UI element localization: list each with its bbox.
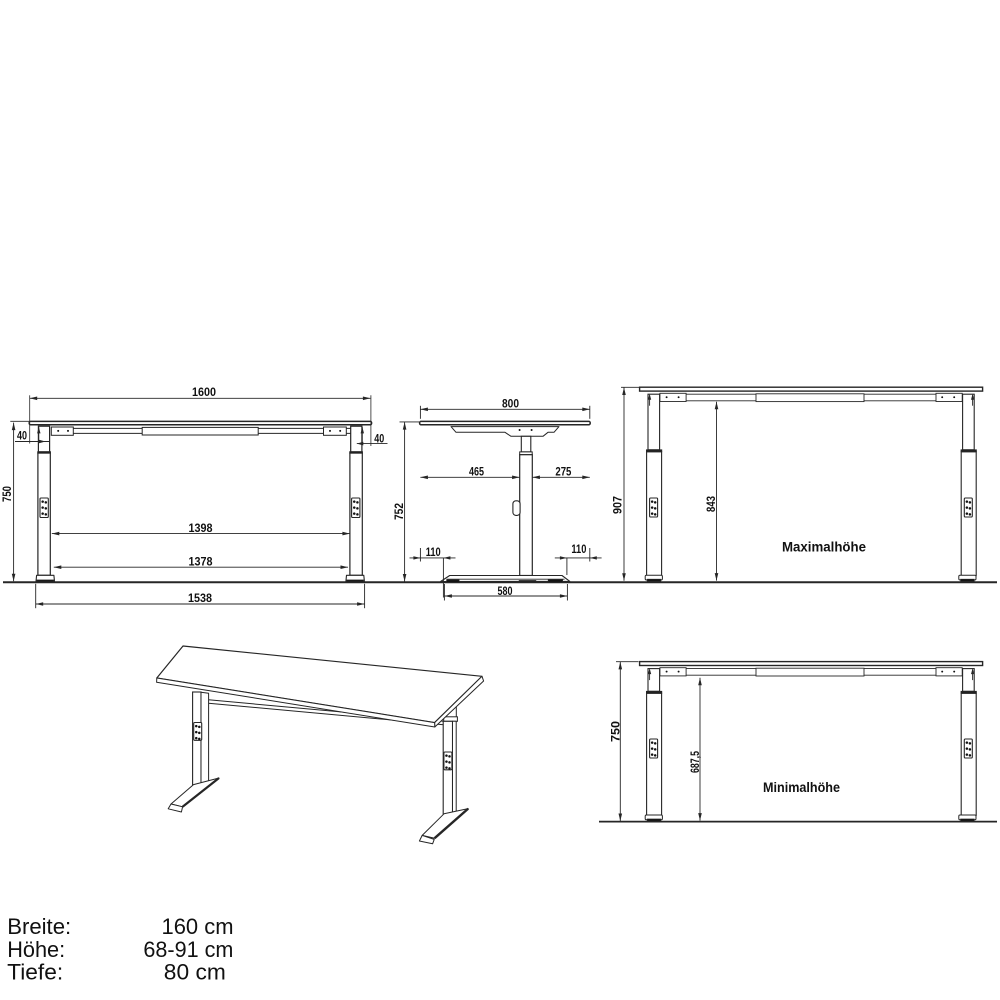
svg-text:750: 750 bbox=[608, 721, 622, 742]
svg-text:275: 275 bbox=[555, 465, 571, 479]
svg-text:800: 800 bbox=[502, 397, 519, 411]
svg-text:1538: 1538 bbox=[188, 591, 212, 605]
svg-text:68-91 cm: 68-91 cm bbox=[143, 937, 233, 962]
svg-text:843: 843 bbox=[704, 496, 718, 512]
svg-text:160 cm: 160 cm bbox=[162, 914, 234, 939]
svg-text:687,5: 687,5 bbox=[688, 751, 702, 773]
svg-text:40: 40 bbox=[17, 429, 27, 443]
svg-text:465: 465 bbox=[469, 465, 484, 479]
svg-text:Breite:: Breite: bbox=[7, 914, 71, 939]
svg-text:Tiefe:: Tiefe: bbox=[7, 960, 63, 985]
svg-text:907: 907 bbox=[611, 496, 625, 514]
svg-text:1398: 1398 bbox=[189, 521, 213, 535]
svg-text:1600: 1600 bbox=[192, 385, 216, 399]
svg-text:110: 110 bbox=[426, 545, 441, 559]
svg-text:Maximalhöhe: Maximalhöhe bbox=[782, 540, 866, 555]
svg-text:80 cm: 80 cm bbox=[164, 960, 226, 985]
svg-text:Höhe:: Höhe: bbox=[7, 937, 65, 962]
svg-text:1378: 1378 bbox=[189, 554, 213, 568]
svg-text:110: 110 bbox=[571, 542, 586, 556]
svg-text:580: 580 bbox=[498, 584, 513, 598]
svg-text:750: 750 bbox=[0, 486, 14, 502]
svg-text:752: 752 bbox=[392, 503, 406, 520]
svg-text:40: 40 bbox=[374, 431, 384, 445]
svg-text:Minimalhöhe: Minimalhöhe bbox=[763, 780, 840, 795]
